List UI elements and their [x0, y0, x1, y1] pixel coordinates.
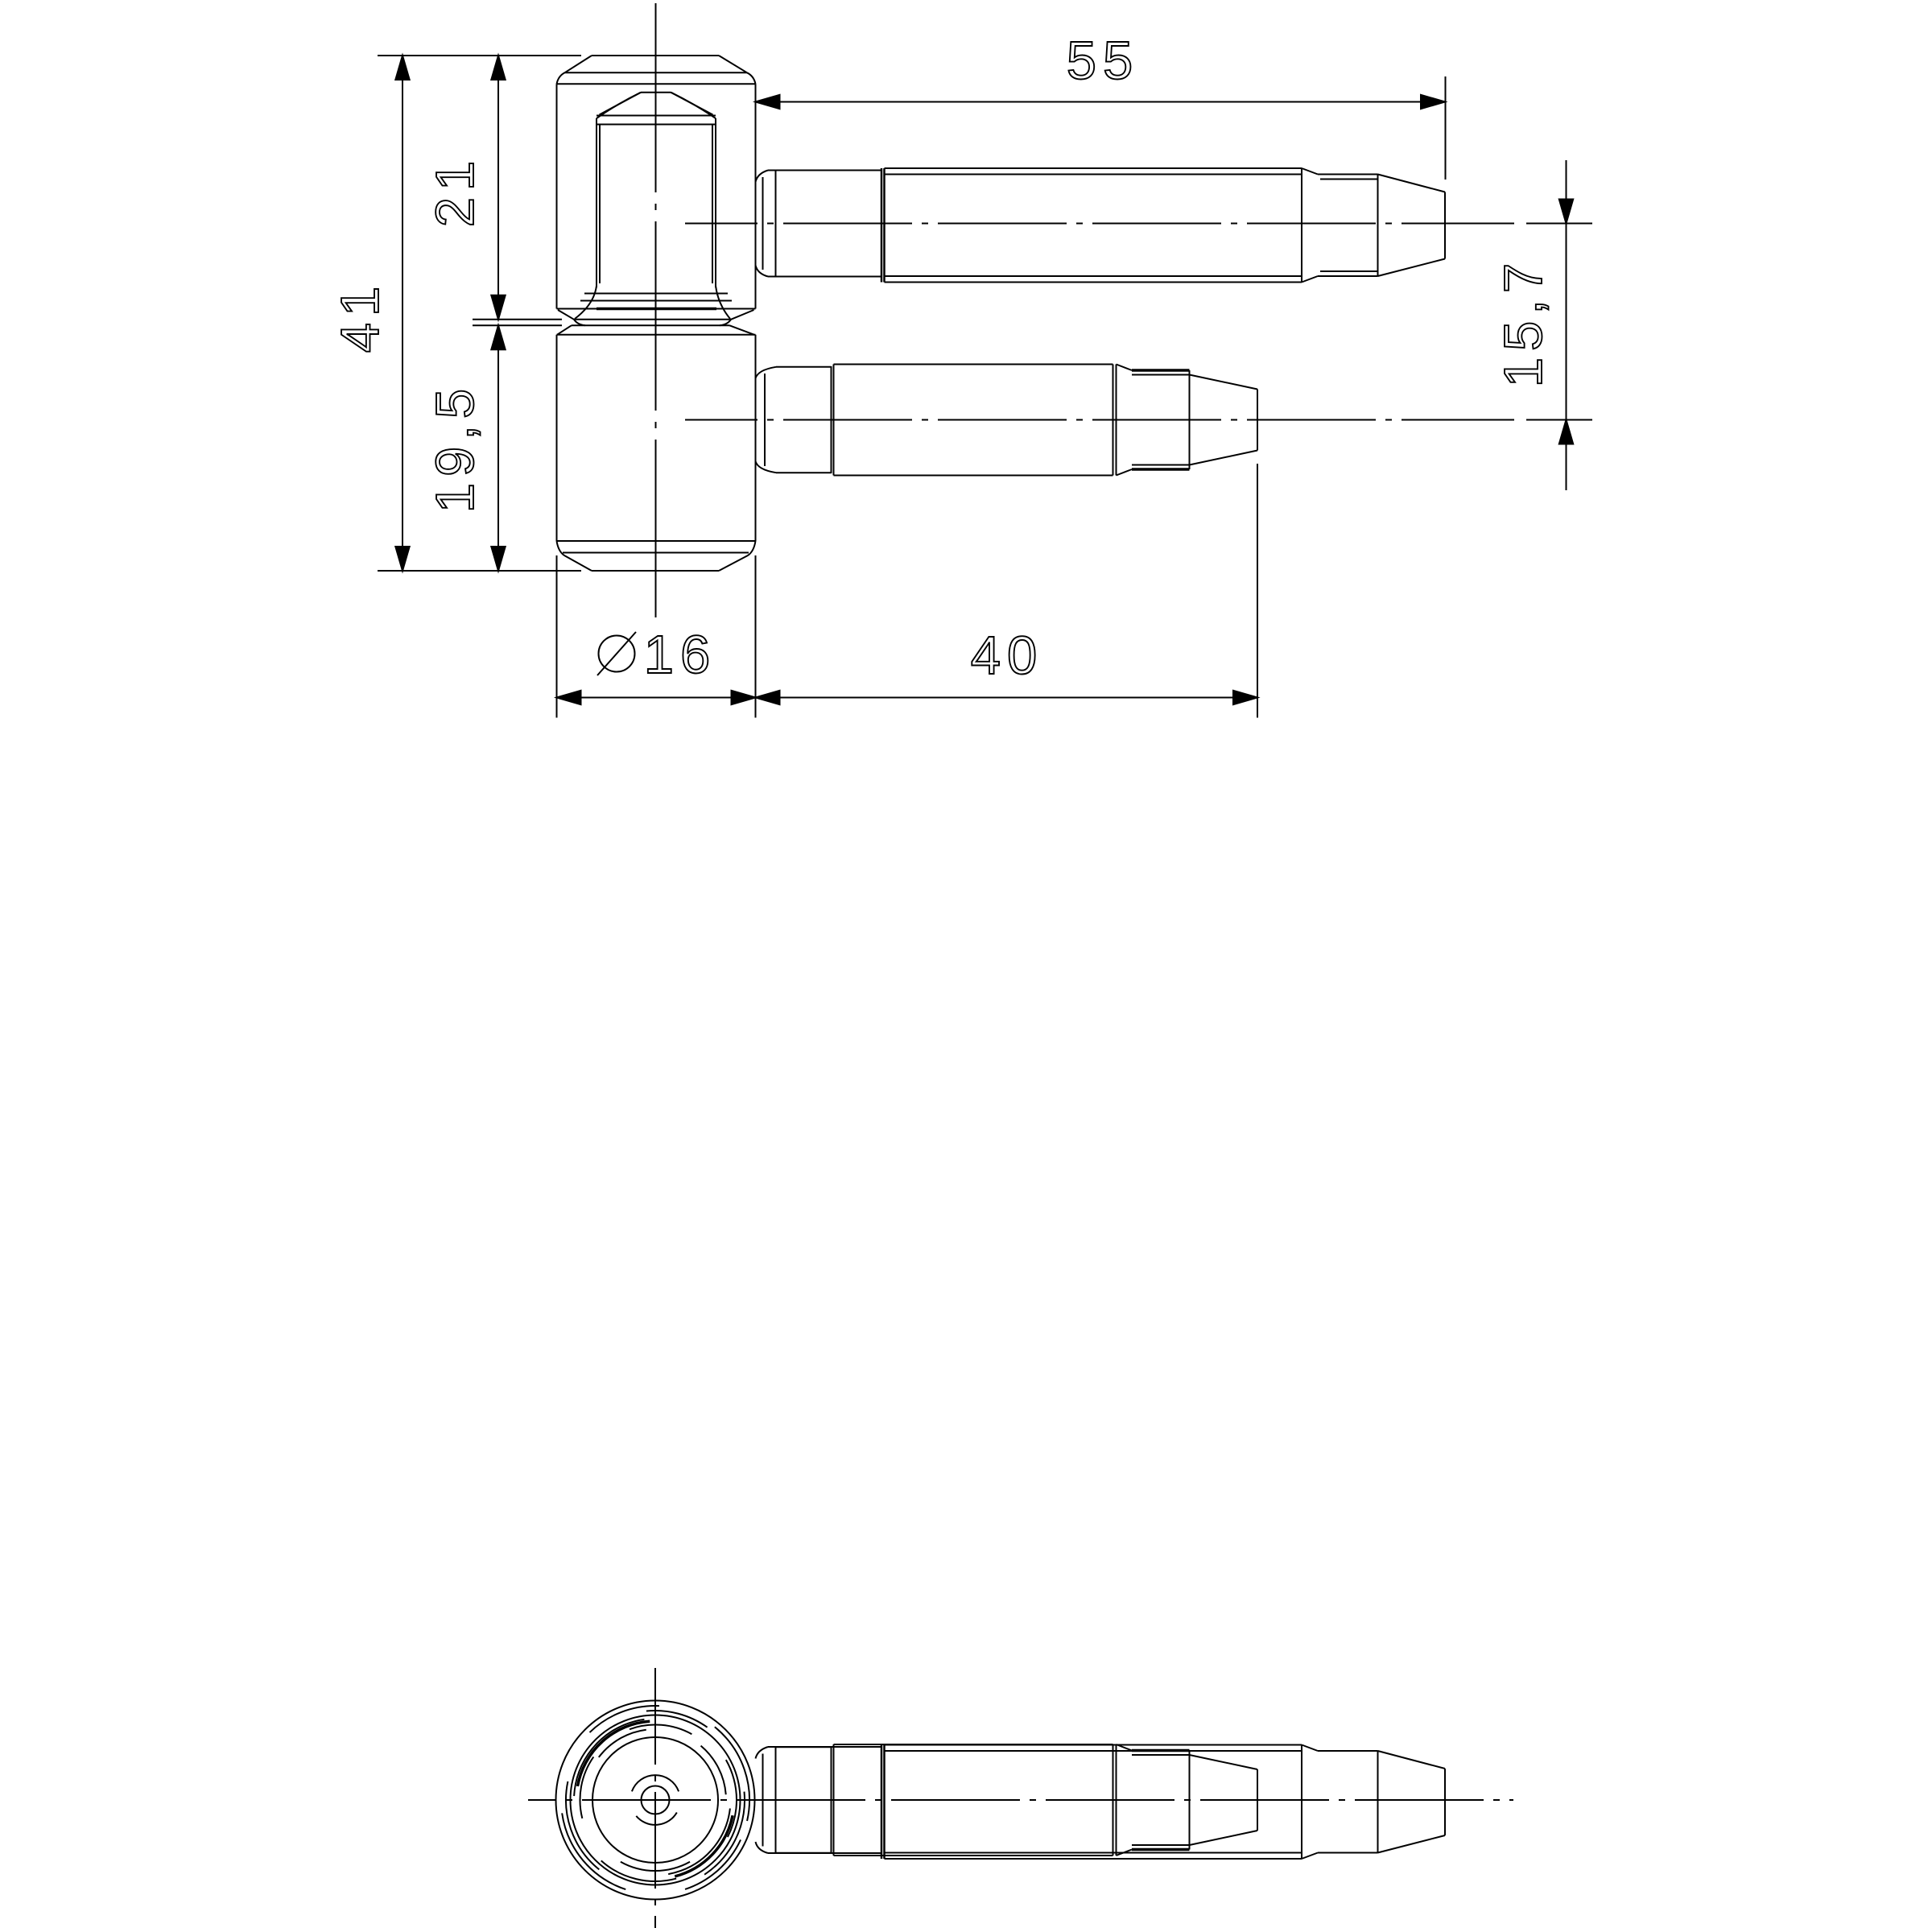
svg-text:55: 55 [1067, 31, 1140, 91]
svg-text:19,5: 19,5 [425, 382, 485, 513]
svg-text:41: 41 [330, 280, 390, 353]
svg-text:40: 40 [971, 625, 1044, 686]
svg-text:16: 16 [644, 625, 717, 685]
svg-text:21: 21 [425, 155, 485, 228]
svg-text:15,7: 15,7 [1493, 257, 1554, 387]
